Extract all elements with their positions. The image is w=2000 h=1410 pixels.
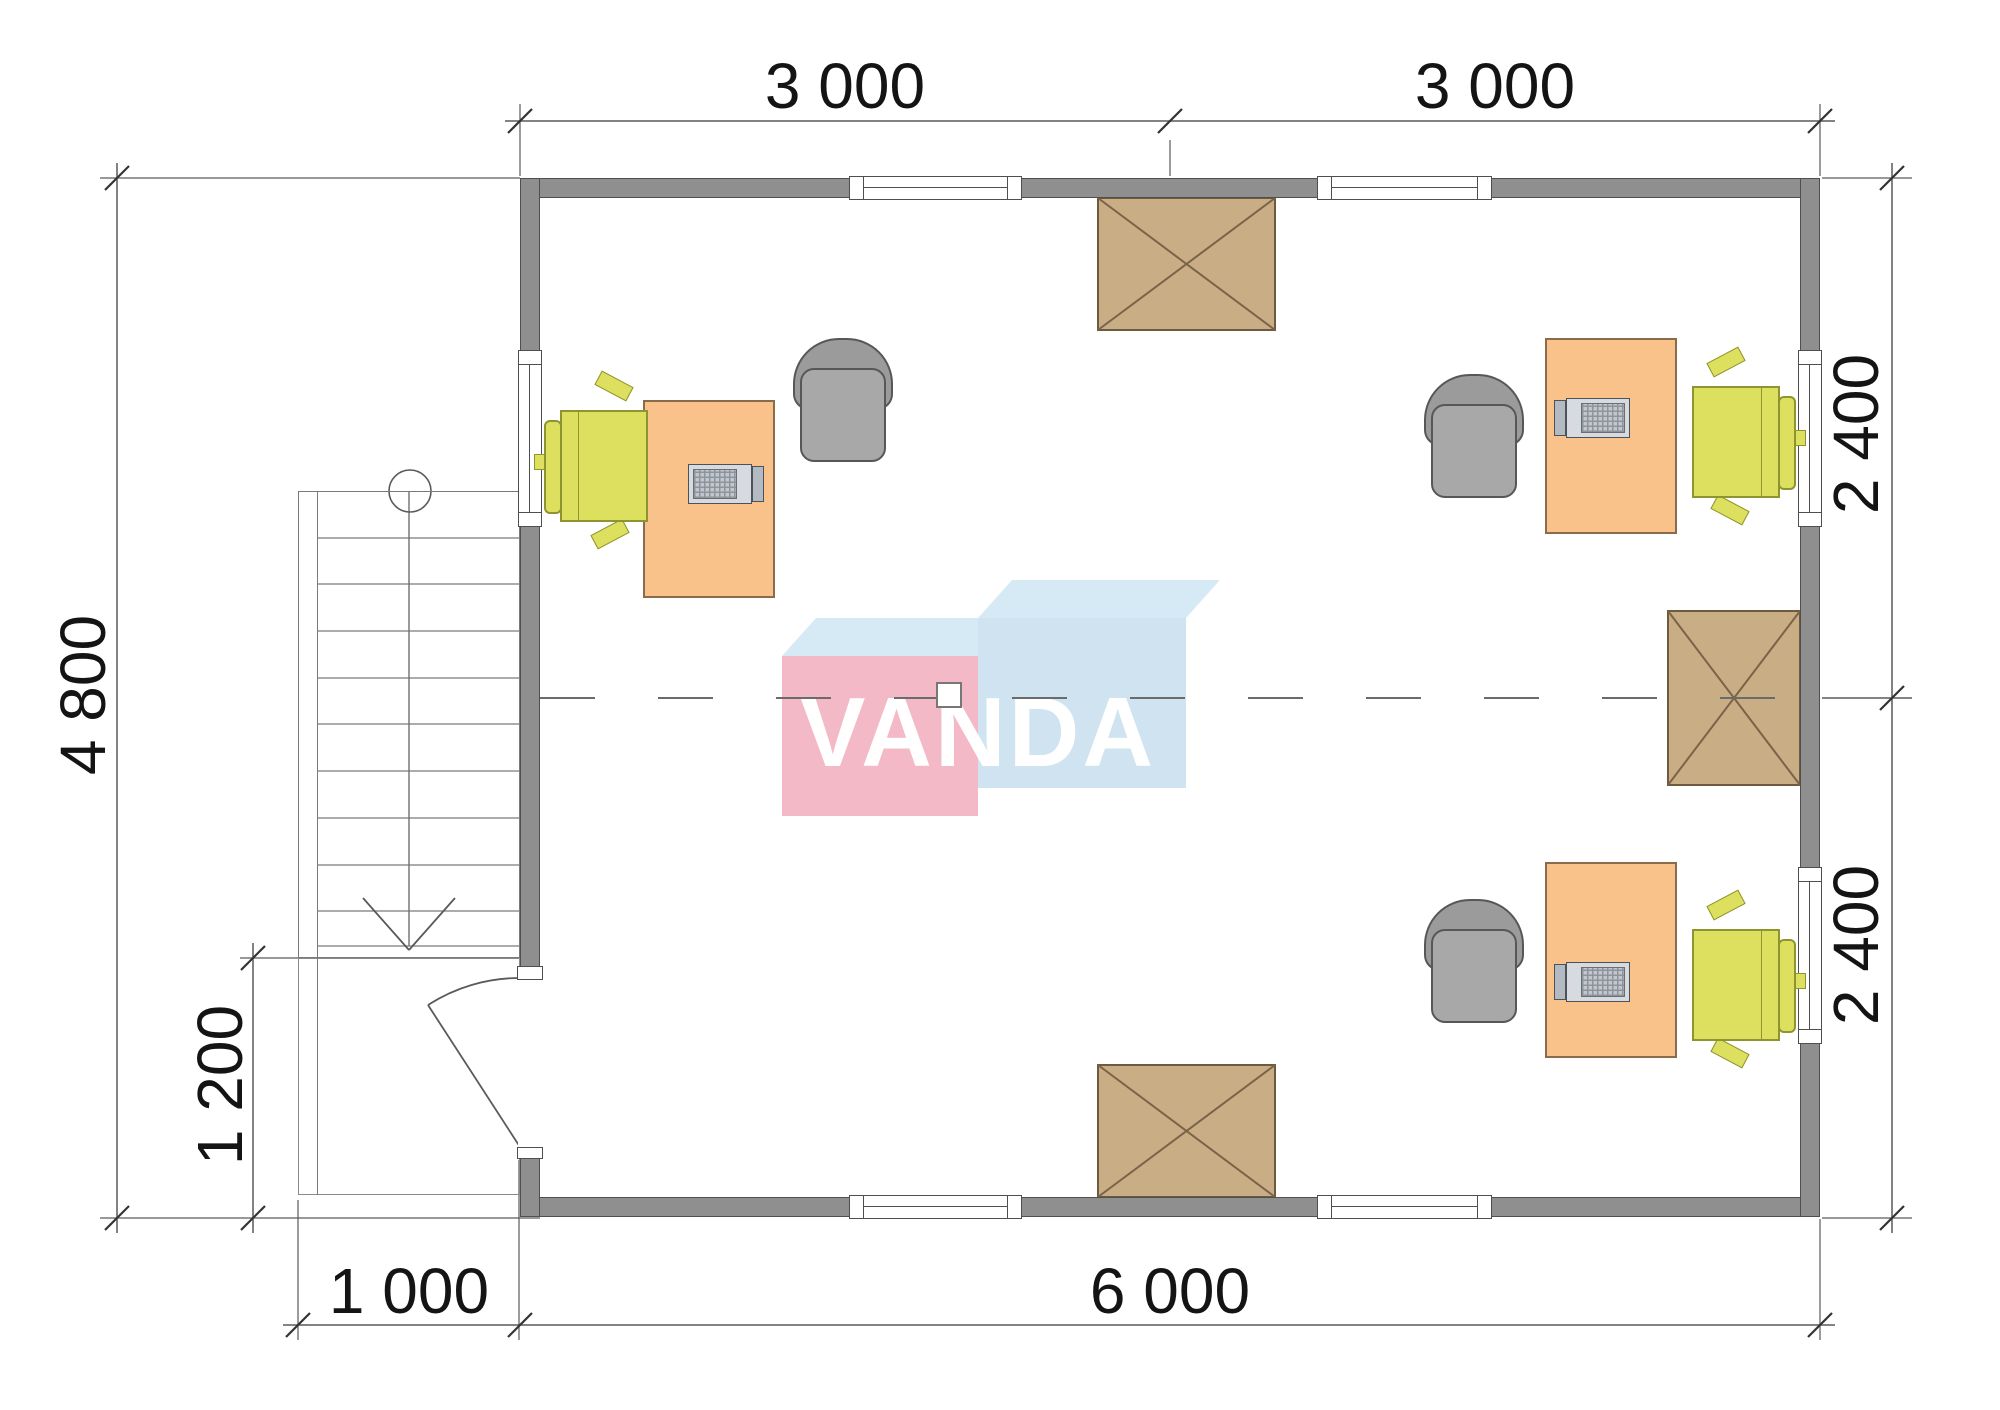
hatch-box-bottom (1098, 1065, 1275, 1197)
desk-bottom-right (1545, 862, 1677, 1058)
dim-label-bottom-porch: 1 000 (329, 1254, 489, 1328)
laptop-bottom-right (1552, 962, 1630, 1002)
window-top-2 (1317, 176, 1492, 200)
floor-plan-canvas: VANDA (0, 0, 2000, 1410)
task-chair-left (534, 378, 650, 544)
dim-label-right-lower: 2 400 (1819, 865, 1893, 1025)
window-bottom-1 (849, 1195, 1022, 1219)
entrance-porch (298, 958, 520, 1195)
armchair-top-right (1424, 374, 1524, 498)
dim-label-left-porch: 1 200 (183, 1005, 257, 1165)
dim-label-top-left: 3 000 (765, 49, 925, 123)
porch-inner-wall-line (317, 958, 318, 1195)
task-chair-bottom-right (1690, 897, 1806, 1063)
dim-label-right-upper: 2 400 (1819, 354, 1893, 514)
armchair-left (793, 338, 893, 462)
staircase-inner-wall-line (317, 491, 318, 958)
laptop-top-right (1552, 398, 1630, 438)
wall-bottom (520, 1197, 1820, 1217)
wall-top (520, 178, 1820, 198)
window-bottom-2 (1317, 1195, 1492, 1219)
dim-label-top-right: 3 000 (1415, 49, 1575, 123)
armchair-bottom-right (1424, 899, 1524, 1023)
task-chair-top-right (1690, 354, 1806, 520)
hatch-box-top (1098, 198, 1275, 330)
dim-label-left-overall: 4 800 (46, 615, 120, 775)
staircase (298, 491, 520, 958)
door-jamb-bottom (517, 1147, 543, 1159)
door-opening (518, 979, 542, 1148)
laptop-left (688, 464, 766, 504)
center-column-marker (936, 682, 962, 708)
window-top-1 (849, 176, 1022, 200)
dim-label-bottom-overall: 6 000 (1090, 1254, 1250, 1328)
door-jamb-top (517, 966, 543, 980)
